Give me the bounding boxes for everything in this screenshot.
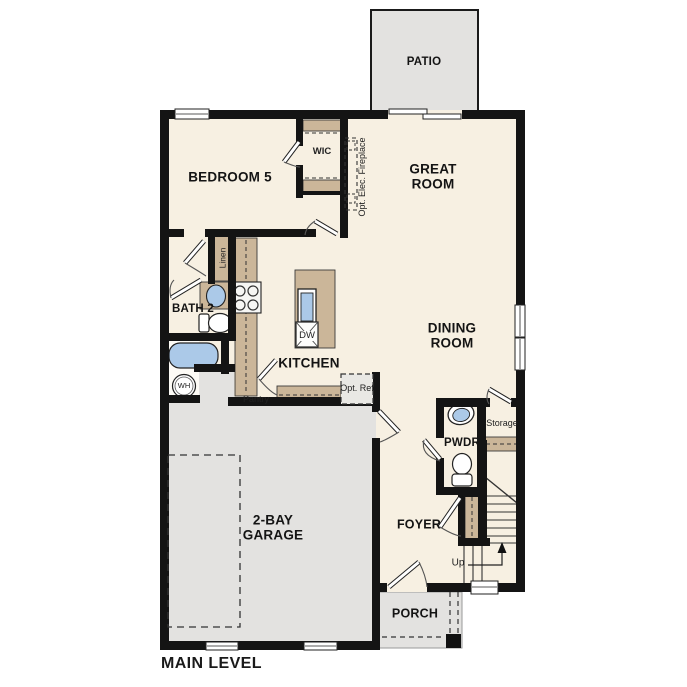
garage-area bbox=[166, 400, 376, 646]
patio-area bbox=[371, 10, 478, 117]
patio-slider-door bbox=[388, 109, 462, 119]
porch-post bbox=[446, 634, 461, 648]
window-right-1 bbox=[515, 305, 525, 337]
wic-shelf-top bbox=[303, 120, 341, 131]
plan-title: MAIN LEVEL bbox=[161, 655, 262, 673]
pwdr-toilet-icon bbox=[452, 454, 472, 487]
wic-shelf-bottom bbox=[303, 180, 341, 192]
bath-sink-icon bbox=[207, 285, 226, 307]
water-heater-icon bbox=[173, 375, 196, 398]
floor-plan-graphic bbox=[0, 0, 687, 687]
floor-plan: PATIO GREAT ROOM BEDROOM 5 WIC Opt. Elec… bbox=[0, 0, 687, 687]
window-right-2 bbox=[515, 338, 525, 370]
opt-ref-outline bbox=[341, 374, 373, 404]
window-top bbox=[175, 109, 209, 119]
bath-toilet-icon bbox=[199, 314, 232, 333]
window-foyer bbox=[471, 581, 498, 594]
